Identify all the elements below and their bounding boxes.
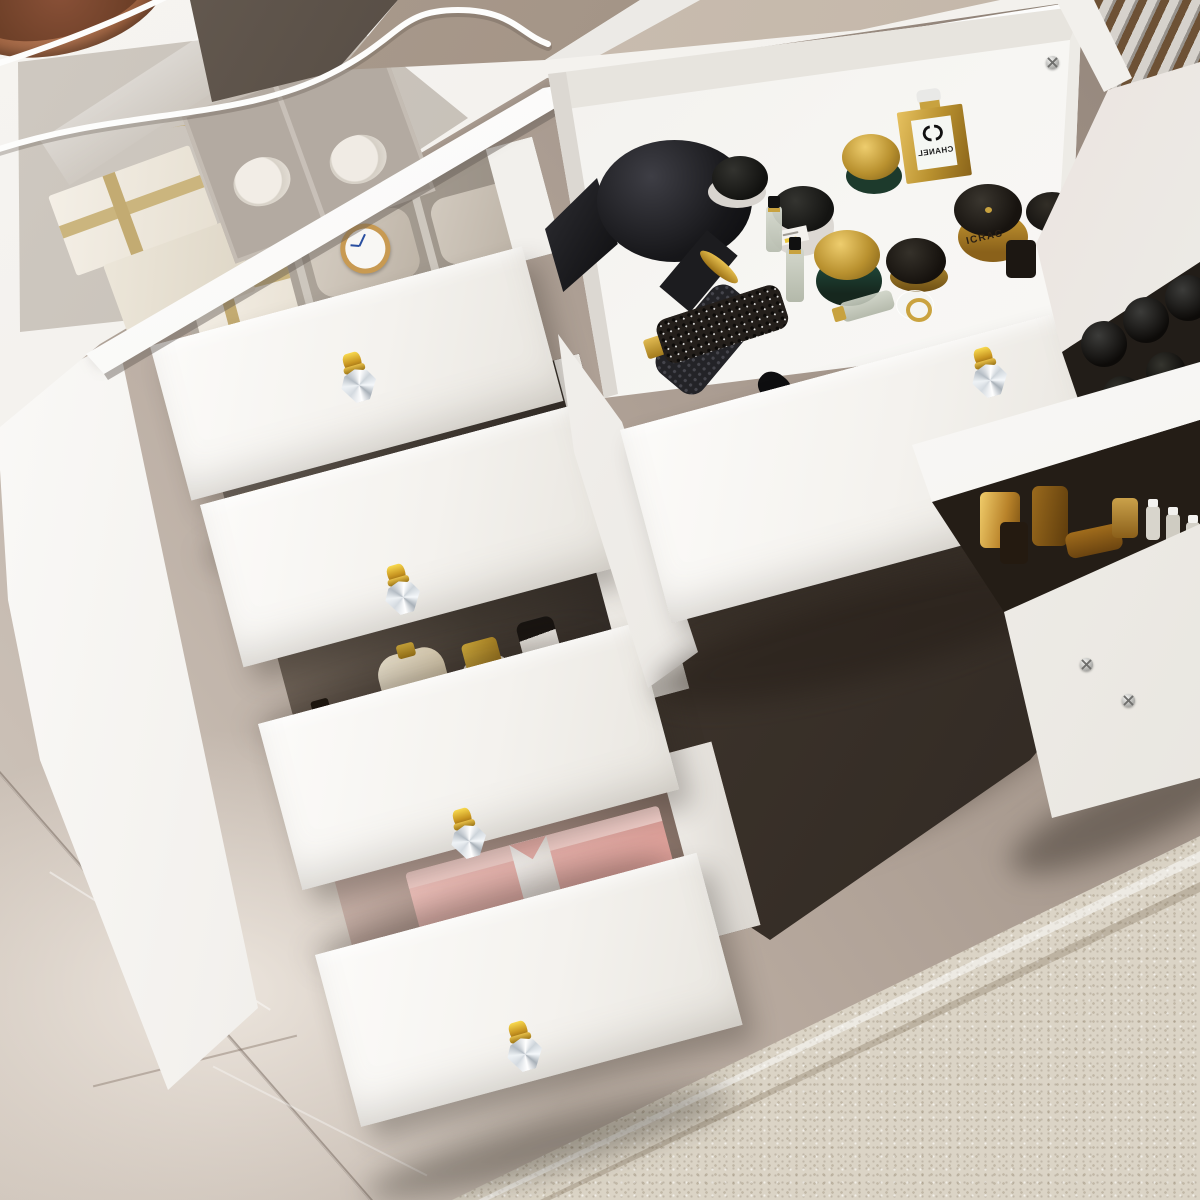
green-jar-gold-dome-lid [842, 134, 900, 180]
white-cap [1188, 515, 1198, 523]
small-dark-bottle [1006, 240, 1036, 278]
vial-black-cap [789, 237, 801, 250]
small-gold-bottle [1112, 498, 1138, 538]
white-cap [1168, 507, 1178, 515]
vial-gold-collar [768, 208, 780, 212]
gold-cap [831, 306, 846, 323]
white-cap [1148, 499, 1158, 507]
rolled-towel [227, 149, 298, 214]
gold-collar [395, 641, 416, 659]
chanel-perfume-bottle: CHANEL [894, 84, 978, 187]
screw [1046, 56, 1059, 69]
gold-ring [906, 298, 932, 322]
chanel-label: CHANEL [911, 115, 958, 170]
dark-bottle [1000, 522, 1028, 564]
amber-flask-bottle [1032, 486, 1068, 546]
black-bottle-cap [1123, 297, 1169, 343]
vanity-product-photo: CHANEL ICRAC [0, 0, 1200, 1200]
white-jar-black-lid [712, 156, 768, 200]
chanel-logo-icon [919, 122, 947, 143]
white-cap-vial [1146, 506, 1160, 540]
perfume-vial [786, 248, 804, 302]
green-jar-gold-dome-lid [814, 230, 880, 280]
organizer-divider [273, 84, 326, 219]
perfume-vial [766, 206, 782, 252]
screw [1122, 694, 1135, 707]
screw [1080, 658, 1093, 671]
vial-gold-collar [789, 250, 801, 254]
chanel-label-text: CHANEL [915, 144, 956, 158]
gold-jar-black-lid [954, 184, 1022, 236]
gold-pin-dot [985, 207, 992, 213]
black-bottle-cap [1081, 321, 1127, 367]
black-jar-lid [886, 238, 946, 284]
vial-black-cap [768, 196, 780, 208]
hair-dryer [545, 138, 825, 408]
